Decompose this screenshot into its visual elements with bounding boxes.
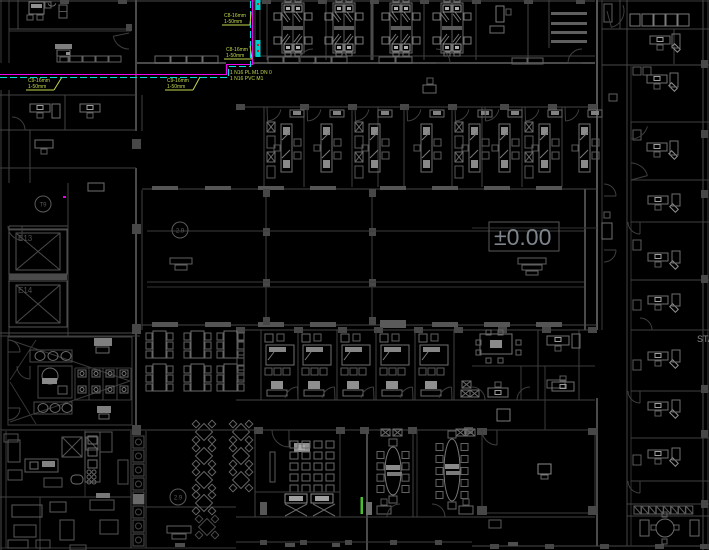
svg-text:2.9: 2.9: [174, 496, 183, 502]
svg-text:2.9: 2.9: [176, 229, 185, 235]
svg-text:1-50mm: 1-50mm: [28, 84, 46, 90]
svg-text:STA: STA: [697, 334, 709, 344]
svg-text:1-50mm: 1-50mm: [224, 19, 242, 25]
svg-text:1-50mm: 1-50mm: [226, 53, 244, 59]
svg-text:±0.00: ±0.00: [494, 224, 551, 250]
svg-text:1-50mm: 1-50mm: [167, 84, 185, 90]
svg-text:E13: E13: [18, 234, 33, 243]
svg-text:1 N16 PVC M1: 1 N16 PVC M1: [230, 76, 264, 82]
svg-text:E14: E14: [18, 286, 33, 295]
svg-text:T9: T9: [39, 203, 47, 209]
